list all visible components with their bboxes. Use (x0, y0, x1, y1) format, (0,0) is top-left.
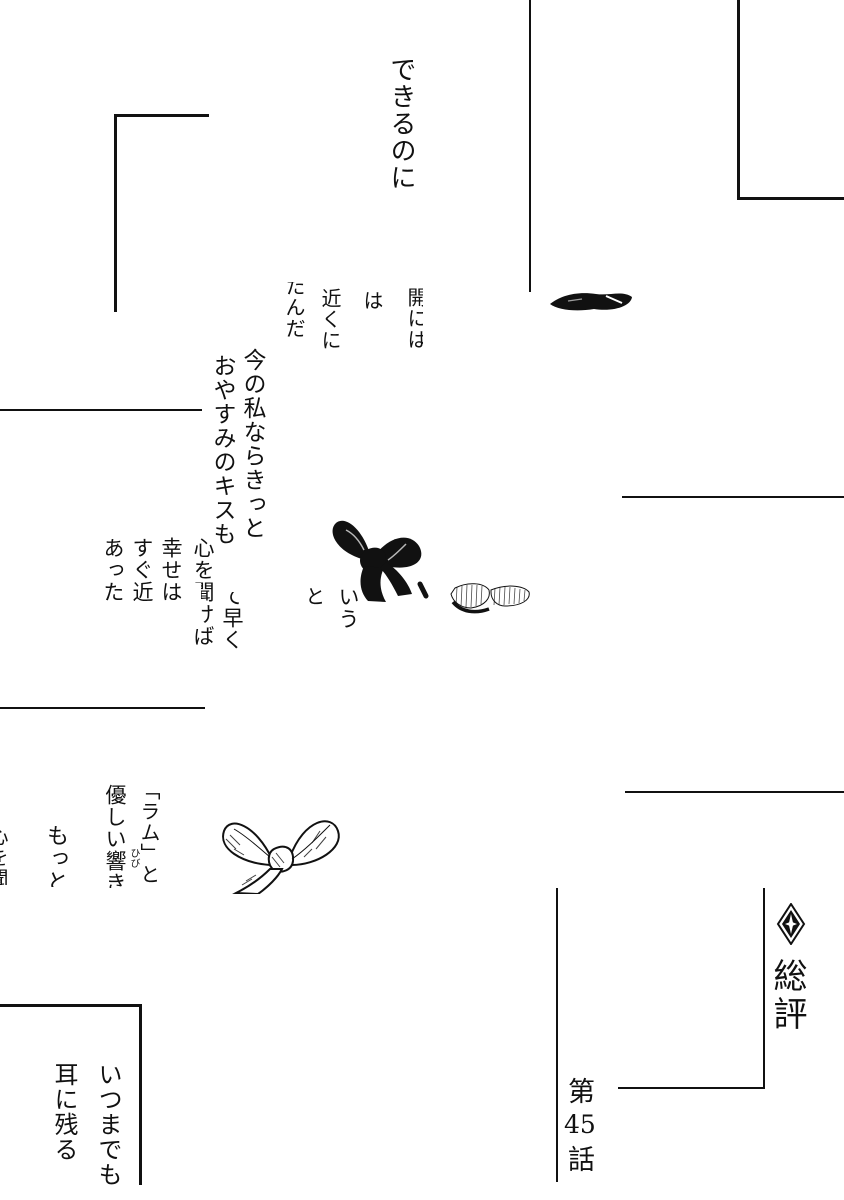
text-to: と (304, 586, 324, 607)
text-motto: もっと (44, 824, 66, 893)
text-sugu: すぐ近 (131, 537, 152, 603)
white-mask (423, 282, 451, 356)
text-shiawase: 幸せは (160, 537, 181, 603)
white-bow-illustration (212, 805, 346, 894)
panel-border-topright-horizontal (737, 197, 844, 200)
text-itsumademo: いつまでも (96, 1062, 120, 1187)
hatched-sketch-fragment (417, 580, 537, 616)
episode-number: 45 (564, 1110, 596, 1139)
panel-border-bottomright-vertical-left (556, 888, 558, 1182)
panel-border-left-horizontal-2 (0, 707, 205, 709)
white-mask (214, 584, 250, 592)
panel-border-topright-vertical (737, 0, 740, 200)
white-mask (98, 888, 176, 914)
panel-border-topleft-vertical (114, 114, 117, 312)
episode-wa: 話 (565, 1145, 592, 1173)
panel-border-bottomright-vertical-right (763, 888, 765, 1089)
dialogue-fragment-col3: 近くに (320, 288, 340, 351)
dialogue-fragment-col4: たんだ (284, 276, 304, 339)
white-mask (272, 268, 310, 282)
text-atta: あった (102, 537, 123, 603)
white-mask (40, 887, 82, 913)
black-bow-fragment-illustration (548, 288, 634, 314)
monologue-line1: 今の私ならきっと (240, 348, 263, 540)
monologue-line2: おやすみのキスも (210, 354, 233, 546)
dialogue-dekirunoni: できるのに (388, 56, 414, 191)
diamond-ornament-icon (776, 903, 806, 945)
panel-border-right-horizontal-1 (622, 496, 844, 498)
text-edge-clipped: 心を聞 (0, 826, 7, 889)
episode-dai: 第 (565, 1077, 592, 1105)
white-mask (184, 583, 201, 629)
text-hayaku: て早く (221, 585, 242, 651)
panel-border-topleft-horizontal (114, 114, 209, 117)
panel-border-left-horizontal-1 (0, 409, 202, 411)
white-mask (0, 885, 28, 911)
text-yasashii-hibiki: 優しい響き (104, 784, 125, 894)
text-mimi-ni-nokoru: 耳に残る (52, 1062, 76, 1162)
black-bow-illustration (326, 508, 422, 602)
white-mask (95, 604, 134, 632)
title-sohyo: 総評 (770, 958, 804, 1034)
furigana-hibi: ひび (128, 848, 138, 868)
panel-border-right-horizontal-2 (625, 791, 844, 793)
manga-page: できるのに 開には は 近くに たんだ 今の私ならきっと おやすみのキスも 心を… (0, 0, 844, 1200)
panel-border-bottomright-horizontal (618, 1087, 765, 1089)
dialogue-fragment-col2: は (362, 290, 382, 311)
panel-border-bottomleft-horizontal (0, 1004, 142, 1007)
panel-border-bottomleft-vertical (139, 1004, 142, 1185)
panel-border-top-center-vertical (529, 0, 531, 292)
